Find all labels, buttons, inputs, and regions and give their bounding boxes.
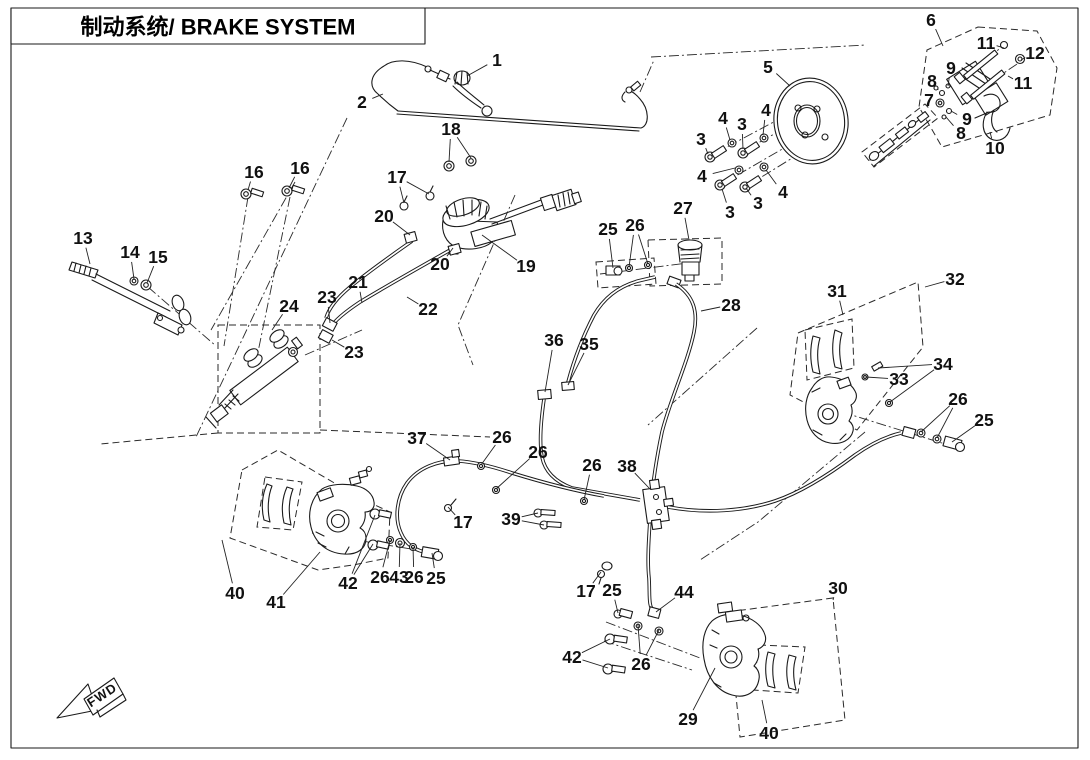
part-callout-17: 17 bbox=[576, 581, 595, 601]
leader-line bbox=[866, 377, 888, 378]
caliper-bracket-10 bbox=[983, 112, 1010, 140]
leader-line bbox=[132, 262, 134, 279]
leader-line bbox=[635, 473, 650, 489]
hose-clamp bbox=[602, 562, 612, 570]
part-callout-4: 4 bbox=[778, 182, 788, 202]
part-callout-15: 15 bbox=[148, 247, 168, 267]
leader-line bbox=[583, 660, 609, 668]
leader-line bbox=[457, 137, 471, 158]
pads-box-bottom bbox=[753, 645, 805, 693]
leader-line bbox=[685, 218, 689, 240]
leader-line bbox=[86, 248, 90, 264]
part-callout-13: 13 bbox=[73, 228, 93, 248]
reservoir-hoses bbox=[318, 232, 461, 344]
part-callout-10: 10 bbox=[985, 138, 1005, 158]
part-callout-20: 20 bbox=[374, 206, 394, 226]
leader-line bbox=[609, 239, 613, 268]
leader-line bbox=[639, 235, 649, 265]
leader-line bbox=[248, 182, 251, 191]
hose-fitting-20b bbox=[448, 244, 461, 256]
leader-line bbox=[937, 408, 953, 438]
leader-line bbox=[952, 426, 975, 442]
part-callout-32: 32 bbox=[945, 269, 965, 289]
part-callout-30: 30 bbox=[828, 578, 848, 598]
leader-line bbox=[496, 459, 530, 489]
leader-line bbox=[407, 297, 418, 304]
leader-line bbox=[449, 139, 450, 162]
part-callout-3: 3 bbox=[753, 193, 763, 213]
leader-line bbox=[951, 111, 957, 115]
part-callout-24: 24 bbox=[279, 296, 299, 316]
brake-pedal bbox=[69, 262, 193, 335]
part-callout-26: 26 bbox=[625, 215, 645, 235]
leader-line bbox=[722, 189, 726, 203]
pipe-fitting-36 bbox=[538, 389, 552, 399]
part-callout-36: 36 bbox=[544, 330, 564, 350]
brake-pad-40b bbox=[787, 655, 796, 690]
callout-layer: 1218171616202019131415242321222325262728… bbox=[73, 10, 1045, 743]
leader-line bbox=[742, 134, 743, 149]
part-callout-4: 4 bbox=[697, 166, 707, 186]
leader-line bbox=[840, 301, 843, 315]
leader-line bbox=[693, 668, 715, 710]
pipe-fitting-35 bbox=[562, 381, 575, 390]
leader-line bbox=[272, 314, 283, 330]
part-callout-1: 1 bbox=[492, 50, 502, 70]
leader-line bbox=[776, 74, 790, 87]
part-callout-14: 14 bbox=[120, 242, 140, 262]
part-callout-40: 40 bbox=[759, 723, 779, 743]
part-callout-6: 6 bbox=[926, 10, 936, 30]
part-callout-20: 20 bbox=[430, 254, 450, 274]
leader-line bbox=[407, 182, 429, 194]
part-callout-42: 42 bbox=[338, 573, 358, 593]
leader-line bbox=[646, 630, 659, 655]
part-callout-11: 11 bbox=[977, 33, 996, 53]
leader-line bbox=[413, 547, 414, 567]
washer-15 bbox=[141, 280, 151, 290]
part-callout-12: 12 bbox=[1025, 43, 1045, 63]
leader-line bbox=[946, 117, 954, 126]
hose-fitting-23b bbox=[318, 330, 333, 344]
brake-pad-31 bbox=[833, 330, 842, 369]
master-cylinder bbox=[206, 327, 302, 428]
part-callout-39: 39 bbox=[501, 509, 521, 529]
part-callout-25: 25 bbox=[426, 568, 446, 588]
part-callout-34: 34 bbox=[933, 354, 953, 374]
leader-line bbox=[222, 540, 232, 583]
washer-7 bbox=[936, 99, 944, 107]
part-callout-11: 11 bbox=[1014, 73, 1033, 93]
part-callout-26: 26 bbox=[370, 567, 390, 587]
leader-line bbox=[584, 475, 590, 500]
part-callout-22: 22 bbox=[418, 299, 438, 319]
fwd-marker: FWD bbox=[57, 678, 126, 718]
bottom-caliper bbox=[603, 602, 796, 696]
part-callout-7: 7 bbox=[924, 90, 934, 110]
brake-pad-40 bbox=[282, 487, 293, 525]
brake-system-page: 制动系统/ BRAKE SYSTEM bbox=[0, 0, 1090, 760]
leader-line bbox=[921, 406, 950, 432]
part-callout-8: 8 bbox=[927, 71, 937, 91]
part-callout-5: 5 bbox=[763, 57, 773, 77]
part-callout-16: 16 bbox=[290, 158, 310, 178]
part-callout-21: 21 bbox=[348, 272, 368, 292]
part-callout-16: 16 bbox=[244, 162, 264, 182]
part-callout-2: 2 bbox=[357, 92, 367, 112]
part-callout-26: 26 bbox=[948, 389, 968, 409]
leader-line bbox=[283, 552, 320, 595]
part-callout-18: 18 bbox=[441, 119, 461, 139]
part-callout-26: 26 bbox=[492, 427, 512, 447]
leader-line bbox=[713, 168, 735, 174]
leader-line bbox=[762, 700, 767, 723]
brake-system-diagram: 制动系统/ BRAKE SYSTEM bbox=[0, 0, 1090, 760]
brake-pad-40 bbox=[262, 484, 272, 522]
leader-line bbox=[878, 365, 932, 368]
leader-line bbox=[426, 444, 450, 461]
brake-pad-31 bbox=[811, 336, 820, 374]
leader-line bbox=[656, 598, 675, 612]
part-callout-35: 35 bbox=[579, 334, 599, 354]
part-callout-41: 41 bbox=[266, 592, 286, 612]
part-callout-3: 3 bbox=[737, 114, 747, 134]
part-callout-9: 9 bbox=[946, 58, 956, 78]
part-callout-19: 19 bbox=[516, 256, 536, 276]
leader-line bbox=[332, 340, 344, 347]
part-callout-26: 26 bbox=[582, 455, 602, 475]
part-callout-3: 3 bbox=[725, 202, 735, 222]
brake-pad-40b bbox=[766, 652, 775, 688]
part-callout-27: 27 bbox=[673, 198, 692, 218]
part-callout-25: 25 bbox=[598, 219, 618, 239]
brake-disc bbox=[769, 74, 853, 168]
part-callout-25: 25 bbox=[974, 410, 994, 430]
page-title: 制动系统/ BRAKE SYSTEM bbox=[80, 15, 355, 40]
part-callout-4: 4 bbox=[761, 100, 771, 120]
part-callout-23: 23 bbox=[317, 287, 337, 307]
front-reservoir bbox=[439, 189, 581, 254]
part-callout-26: 26 bbox=[528, 442, 548, 462]
leader-line bbox=[726, 128, 730, 141]
rear-reservoir bbox=[606, 240, 702, 288]
part-callout-3: 3 bbox=[696, 129, 706, 149]
part-callout-31: 31 bbox=[827, 281, 847, 301]
rear-pipe bbox=[668, 427, 965, 511]
leader-line bbox=[629, 235, 633, 267]
leader-line bbox=[481, 445, 495, 465]
leader-line bbox=[393, 222, 410, 235]
leader-line bbox=[766, 170, 776, 184]
part-callout-40: 40 bbox=[225, 583, 245, 603]
part-callout-17: 17 bbox=[453, 512, 472, 532]
lever-eyelet bbox=[482, 106, 492, 116]
part-callout-37: 37 bbox=[407, 428, 426, 448]
leader-line bbox=[925, 282, 944, 287]
leader-line bbox=[147, 266, 154, 283]
parking-brake-lever bbox=[372, 61, 647, 131]
rear-brake-hose bbox=[598, 284, 696, 618]
part-callout-25: 25 bbox=[602, 580, 622, 600]
part-callout-33: 33 bbox=[889, 369, 909, 389]
part-callout-23: 23 bbox=[344, 342, 364, 362]
part-callout-29: 29 bbox=[678, 709, 698, 729]
part-callout-17: 17 bbox=[387, 167, 406, 187]
pedal-bolts bbox=[241, 185, 305, 199]
leader-line bbox=[582, 639, 610, 653]
leader-line bbox=[400, 187, 404, 203]
part-callout-26: 26 bbox=[404, 567, 424, 587]
part-callout-38: 38 bbox=[617, 456, 637, 476]
front-pipe bbox=[397, 449, 604, 553]
part-callout-28: 28 bbox=[721, 295, 741, 315]
hose-fitting-20a bbox=[404, 232, 417, 244]
part-callout-26: 26 bbox=[631, 654, 651, 674]
rear-caliper bbox=[806, 330, 893, 443]
part-callout-42: 42 bbox=[562, 647, 582, 667]
leader-line bbox=[545, 350, 552, 392]
leader-line bbox=[1008, 76, 1013, 79]
part-callout-8: 8 bbox=[956, 123, 966, 143]
leader-line bbox=[936, 29, 943, 46]
part-callout-44: 44 bbox=[674, 582, 694, 602]
part-callout-4: 4 bbox=[718, 108, 728, 128]
leader-line bbox=[467, 65, 487, 76]
leader-line bbox=[701, 307, 720, 311]
